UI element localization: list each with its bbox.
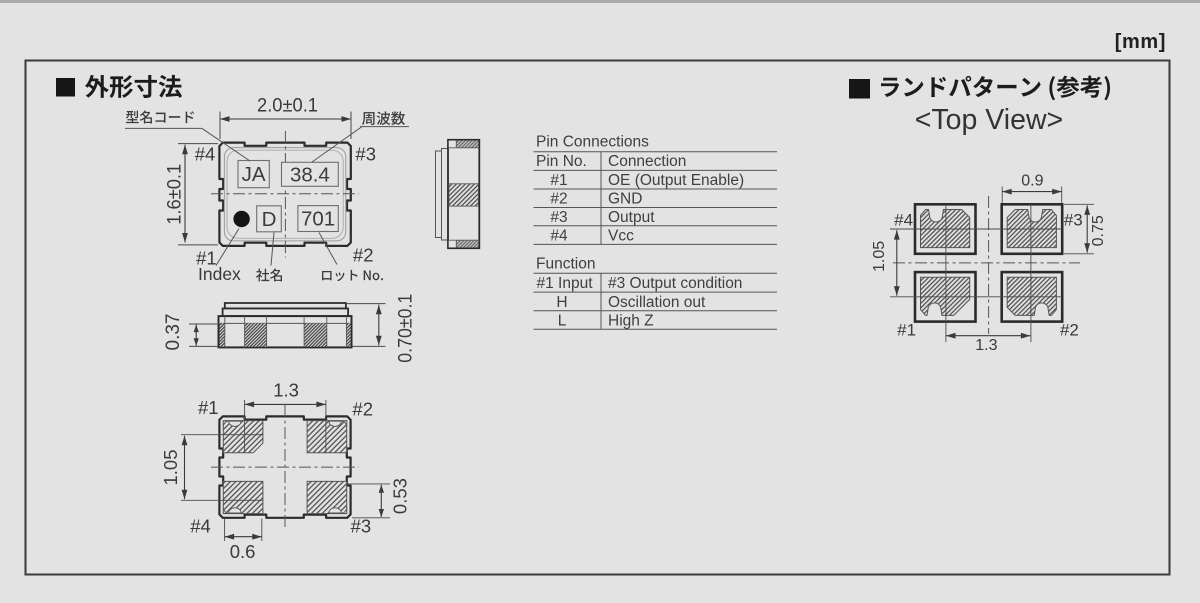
svg-text:0.70±0.1: 0.70±0.1 — [395, 294, 416, 363]
svg-text:H: H — [556, 294, 567, 311]
svg-text:#1: #1 — [550, 172, 567, 189]
svg-text:#1: #1 — [198, 397, 219, 418]
svg-text:Function: Function — [536, 255, 595, 272]
svg-text:High Z: High Z — [608, 312, 654, 329]
svg-text:#3: #3 — [550, 209, 567, 226]
svg-text:#2: #2 — [1060, 321, 1079, 340]
svg-text:0.9: 0.9 — [1021, 173, 1043, 190]
svg-text:#4: #4 — [190, 516, 211, 537]
svg-text:Pin Connections: Pin Connections — [536, 133, 649, 150]
svg-text:#1 Input: #1 Input — [537, 275, 594, 292]
svg-text:1.05: 1.05 — [871, 241, 888, 272]
svg-text:[mm]: [mm] — [1115, 31, 1166, 53]
svg-text:#2: #2 — [550, 190, 567, 207]
svg-text:2.0±0.1: 2.0±0.1 — [257, 96, 318, 117]
svg-text:701: 701 — [301, 208, 335, 231]
svg-text:#3: #3 — [1064, 211, 1083, 230]
svg-text:1.05: 1.05 — [160, 449, 181, 485]
svg-text:Connection: Connection — [608, 153, 686, 170]
svg-text:1.3: 1.3 — [273, 379, 299, 400]
svg-text:#1: #1 — [897, 321, 916, 340]
svg-text:<Top View>: <Top View> — [915, 104, 1063, 136]
svg-text:OE (Output Enable): OE (Output Enable) — [608, 172, 744, 189]
svg-text:GND: GND — [608, 190, 642, 207]
svg-text:Vcc: Vcc — [608, 228, 634, 245]
svg-text:0.53: 0.53 — [389, 478, 410, 514]
svg-text:#3: #3 — [355, 144, 376, 165]
svg-text:1.6±0.1: 1.6±0.1 — [164, 164, 185, 225]
svg-text:#3 Output condition: #3 Output condition — [608, 275, 742, 292]
svg-text:#2: #2 — [352, 398, 373, 419]
svg-text:Oscillation out: Oscillation out — [608, 294, 706, 311]
svg-text:#4: #4 — [195, 144, 216, 165]
svg-text:0.6: 0.6 — [230, 541, 256, 562]
svg-text:JA: JA — [242, 163, 266, 186]
svg-text:L: L — [558, 312, 567, 329]
svg-text:Output: Output — [608, 209, 655, 226]
svg-text:Index: Index — [198, 264, 241, 284]
svg-text:#4: #4 — [550, 228, 568, 245]
svg-text:1.3: 1.3 — [975, 337, 997, 354]
svg-text:Pin No.: Pin No. — [536, 153, 587, 170]
svg-text:#4: #4 — [894, 211, 913, 230]
svg-text:38.4: 38.4 — [290, 164, 330, 187]
svg-text:#3: #3 — [351, 516, 372, 537]
svg-text:#2: #2 — [353, 245, 374, 266]
svg-text:D: D — [262, 208, 277, 231]
svg-text:0.75: 0.75 — [1090, 215, 1107, 246]
svg-text:0.37: 0.37 — [163, 314, 184, 351]
